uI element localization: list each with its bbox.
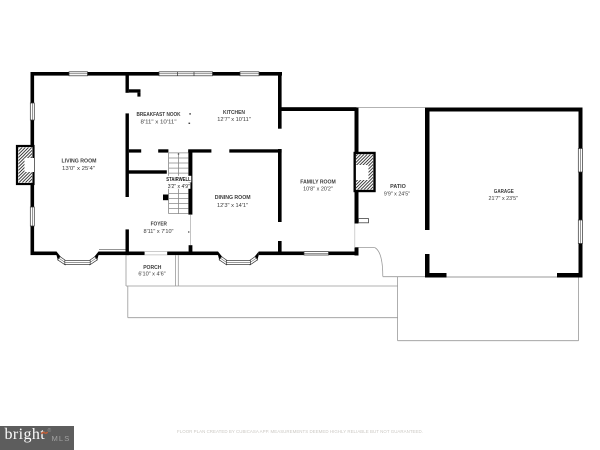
svg-text:12'7" x 10'11": 12'7" x 10'11" xyxy=(217,117,251,123)
svg-text:BREAKFAST NOOK: BREAKFAST NOOK xyxy=(137,112,181,118)
svg-text:3'2" x 4'9": 3'2" x 4'9" xyxy=(168,184,190,190)
svg-text:8'11" x 10'11": 8'11" x 10'11" xyxy=(141,120,177,126)
svg-text:10'8" x 20'2": 10'8" x 20'2" xyxy=(303,187,333,193)
svg-text:DINING ROOM: DINING ROOM xyxy=(215,195,251,201)
svg-text:21'7" x 23'5": 21'7" x 23'5" xyxy=(489,196,519,202)
svg-text:FOYER: FOYER xyxy=(151,222,167,228)
svg-text:LIVING ROOM: LIVING ROOM xyxy=(62,159,98,165)
svg-text:STAIRWELL: STAIRWELL xyxy=(166,177,191,183)
svg-text:12'3" x 14'1": 12'3" x 14'1" xyxy=(217,203,248,209)
svg-text:PORCH: PORCH xyxy=(143,265,161,271)
svg-text:FAMILY ROOM: FAMILY ROOM xyxy=(300,180,336,186)
svg-text:13'0" x 25'4": 13'0" x 25'4" xyxy=(62,166,95,172)
svg-text:9'9" x 24'5": 9'9" x 24'5" xyxy=(384,192,410,198)
svg-text:KITCHEN: KITCHEN xyxy=(223,110,245,116)
svg-text:8'11" x 7'10": 8'11" x 7'10" xyxy=(144,229,174,235)
svg-text:GARAGE: GARAGE xyxy=(494,189,514,195)
svg-text:6'10" x 4'6": 6'10" x 4'6" xyxy=(138,272,165,278)
svg-text:PATIO: PATIO xyxy=(390,184,406,190)
